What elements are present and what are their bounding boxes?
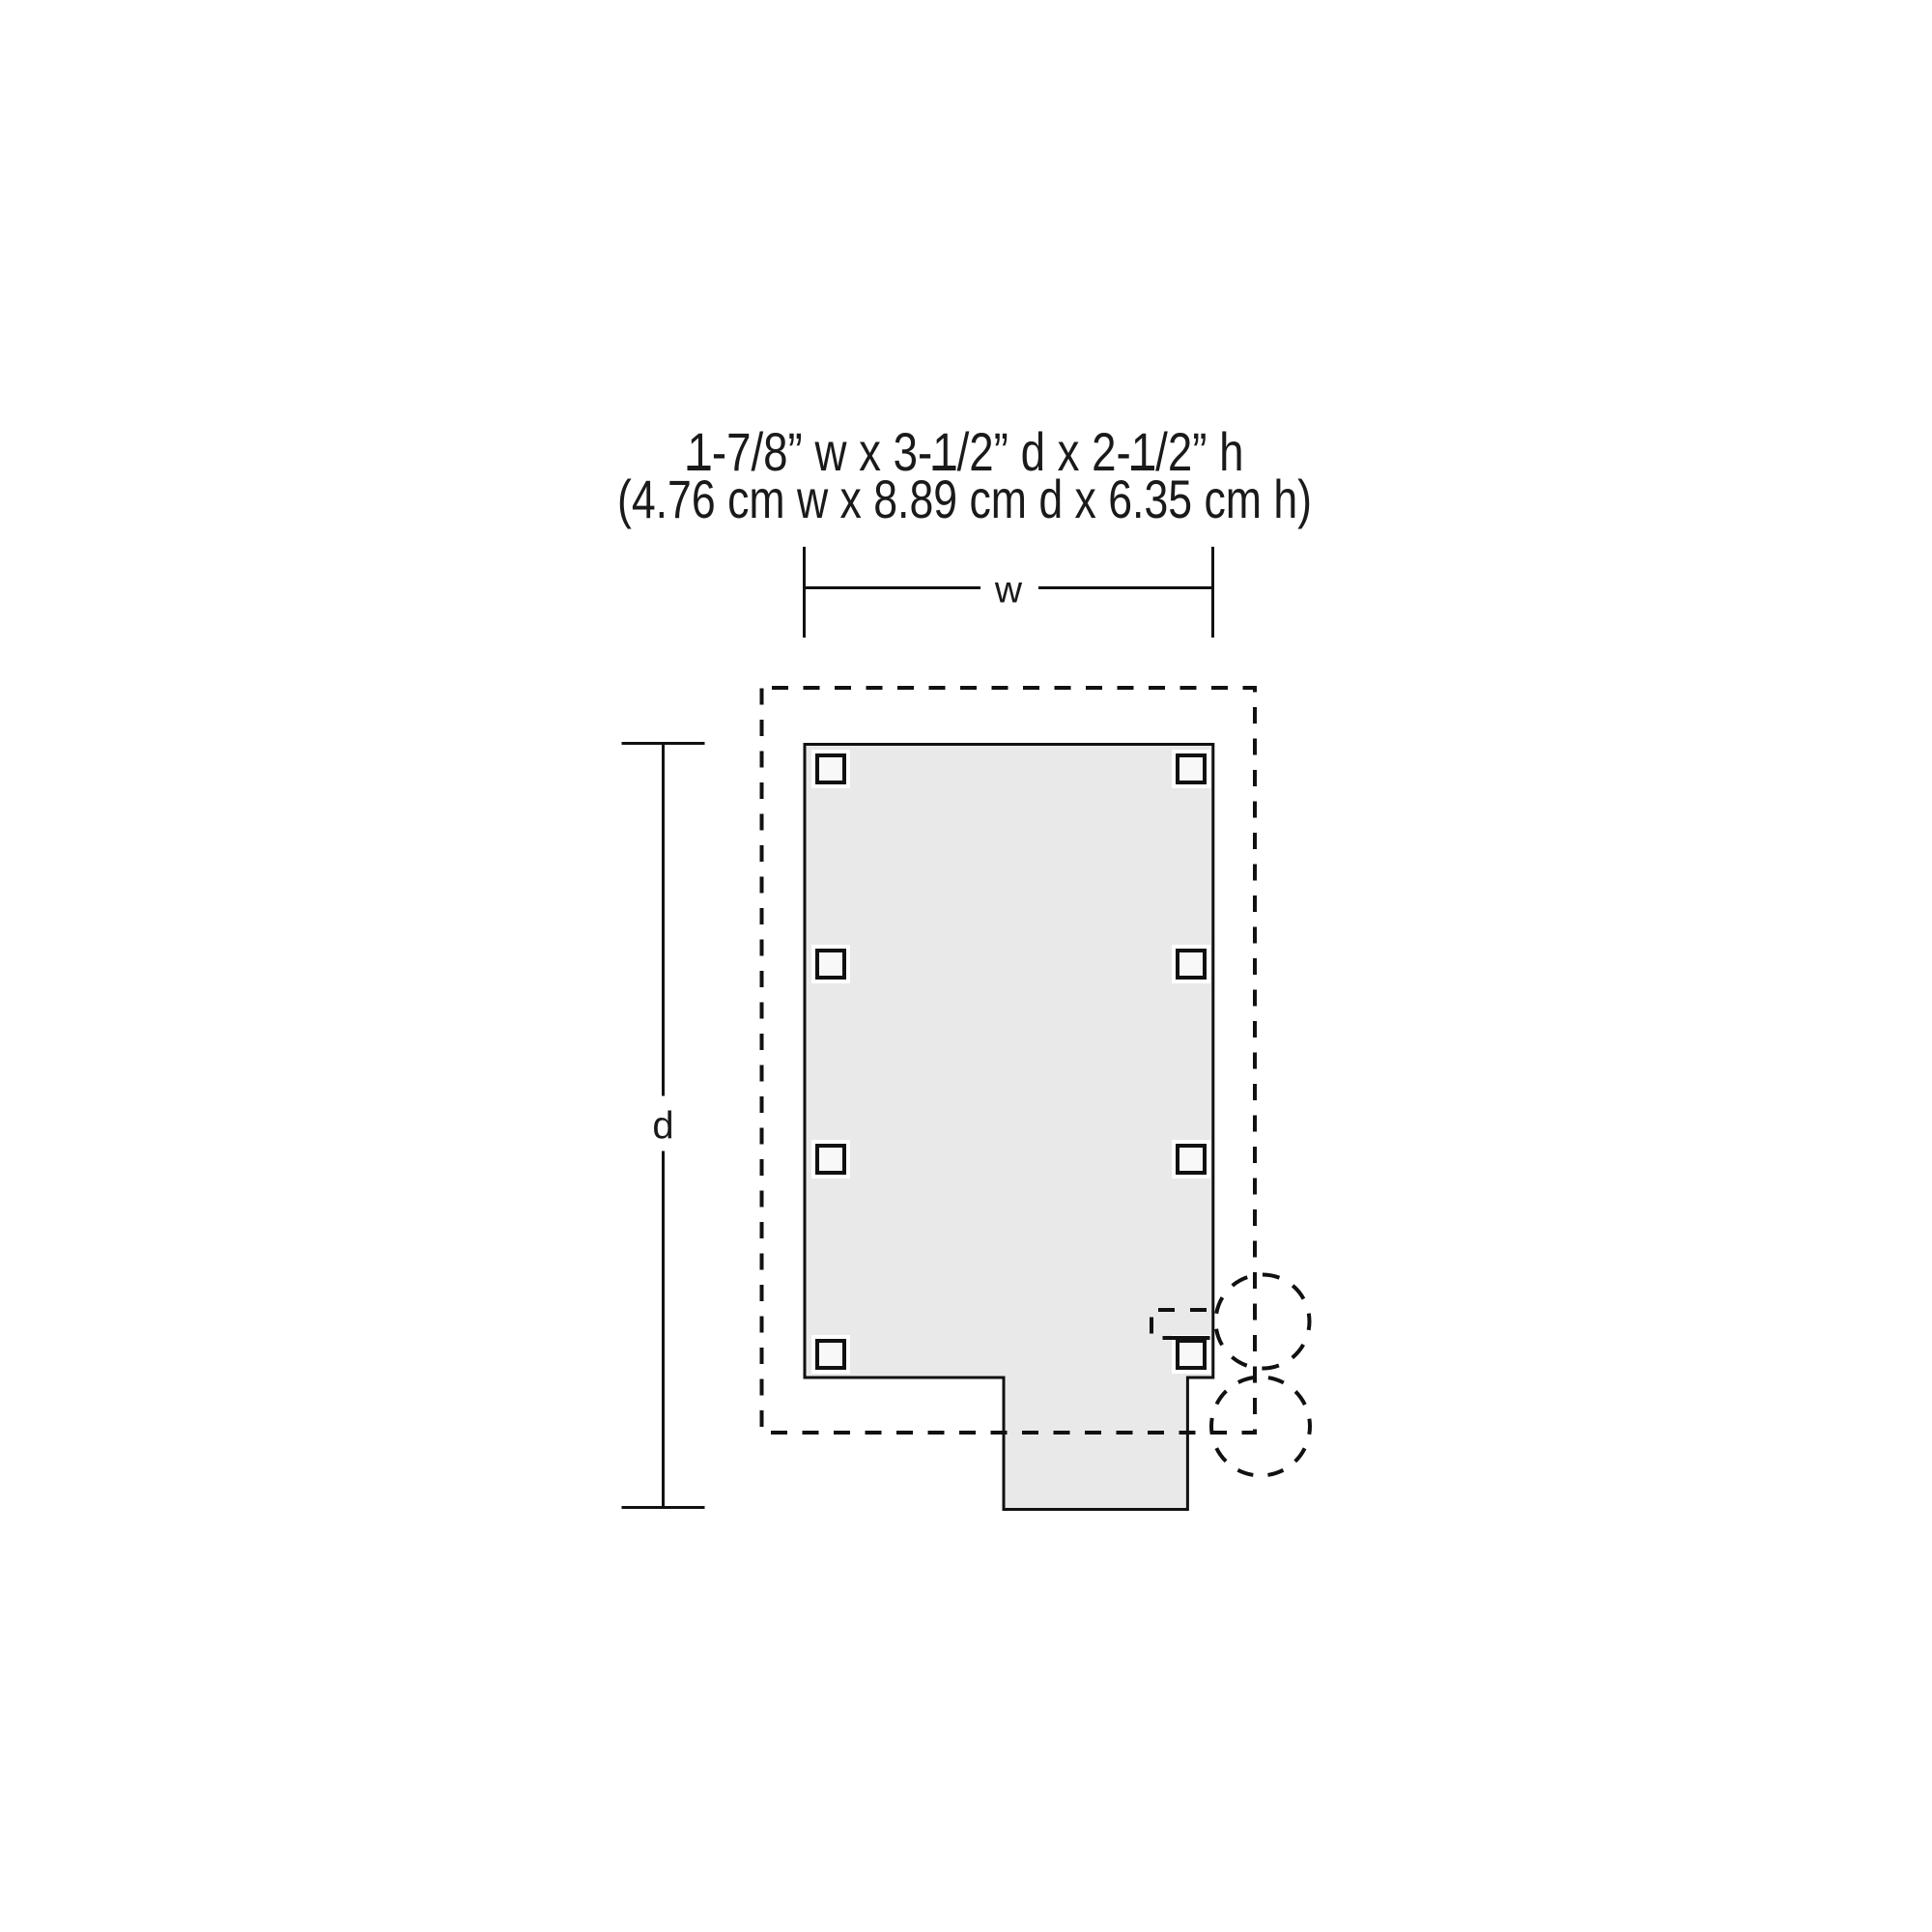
svg-text:d: d	[652, 1105, 673, 1148]
svg-text:(4.76 cm w x 8.89 cm d x 6.35: (4.76 cm w x 8.89 cm d x 6.35 cm h)	[617, 469, 1312, 529]
svg-text:w: w	[994, 570, 1023, 611]
